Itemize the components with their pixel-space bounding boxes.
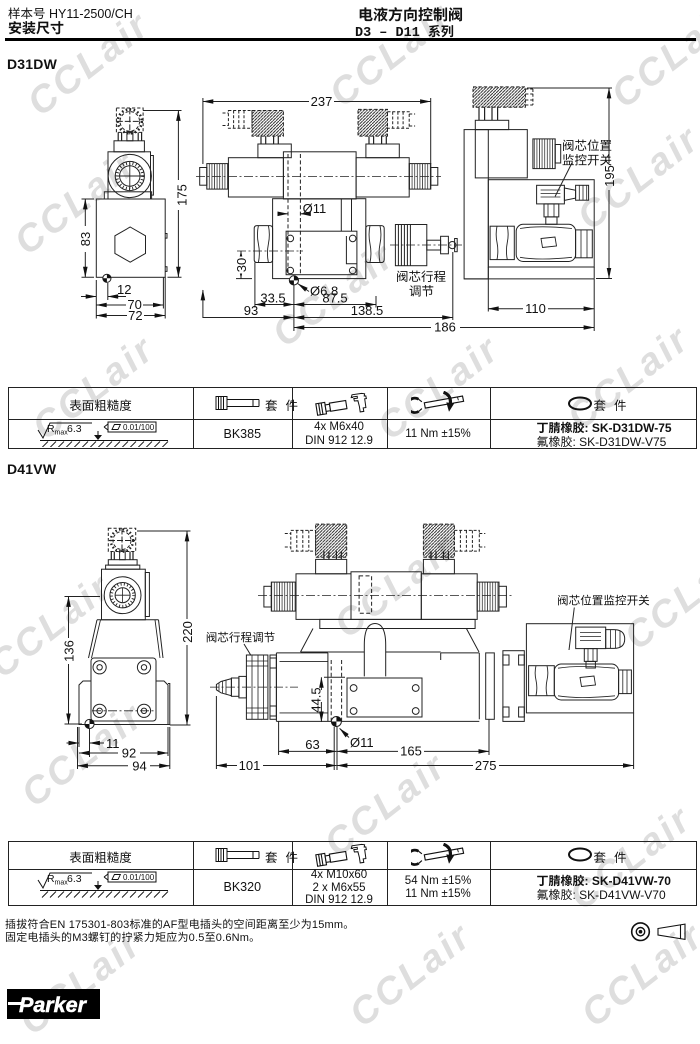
svg-text:138.5: 138.5 xyxy=(351,303,384,318)
svg-text:监控开关: 监控开关 xyxy=(562,154,612,168)
svg-text:165: 165 xyxy=(400,744,422,759)
svg-text:83: 83 xyxy=(78,232,93,246)
svg-text:237: 237 xyxy=(311,94,333,109)
svg-text:195: 195 xyxy=(602,165,617,187)
svg-text:63: 63 xyxy=(305,737,319,752)
svg-text:87.5: 87.5 xyxy=(322,291,347,306)
svg-text:调节: 调节 xyxy=(409,285,434,299)
svg-text:30: 30 xyxy=(234,258,249,272)
svg-text:136: 136 xyxy=(62,640,77,662)
svg-text:0.01/100: 0.01/100 xyxy=(123,423,155,432)
svg-text:阀芯位置: 阀芯位置 xyxy=(562,139,612,153)
svg-text:Ø11: Ø11 xyxy=(350,735,374,750)
svg-text:110: 110 xyxy=(525,301,546,316)
svg-text:275: 275 xyxy=(475,758,497,773)
svg-text:0.01/100: 0.01/100 xyxy=(123,873,155,882)
svg-text:44.5: 44.5 xyxy=(309,687,324,712)
svg-text:101: 101 xyxy=(239,758,261,773)
svg-text:12: 12 xyxy=(117,282,131,297)
svg-text:阀芯行程调节: 阀芯行程调节 xyxy=(206,632,276,645)
svg-text:11: 11 xyxy=(106,736,120,751)
svg-text:33.5: 33.5 xyxy=(260,291,285,306)
svg-text:186: 186 xyxy=(434,320,456,335)
svg-text:Ø11: Ø11 xyxy=(303,201,327,216)
svg-text:6.3: 6.3 xyxy=(67,423,82,435)
svg-text:阀芯行程: 阀芯行程 xyxy=(396,270,447,284)
svg-text:93: 93 xyxy=(244,303,258,318)
svg-text:175: 175 xyxy=(174,184,189,206)
svg-text:阀芯位置监控开关: 阀芯位置监控开关 xyxy=(557,595,650,608)
svg-text:94: 94 xyxy=(132,758,146,773)
svg-text:6.3: 6.3 xyxy=(67,873,82,885)
svg-text:220: 220 xyxy=(180,621,195,643)
svg-text:72: 72 xyxy=(128,308,142,323)
